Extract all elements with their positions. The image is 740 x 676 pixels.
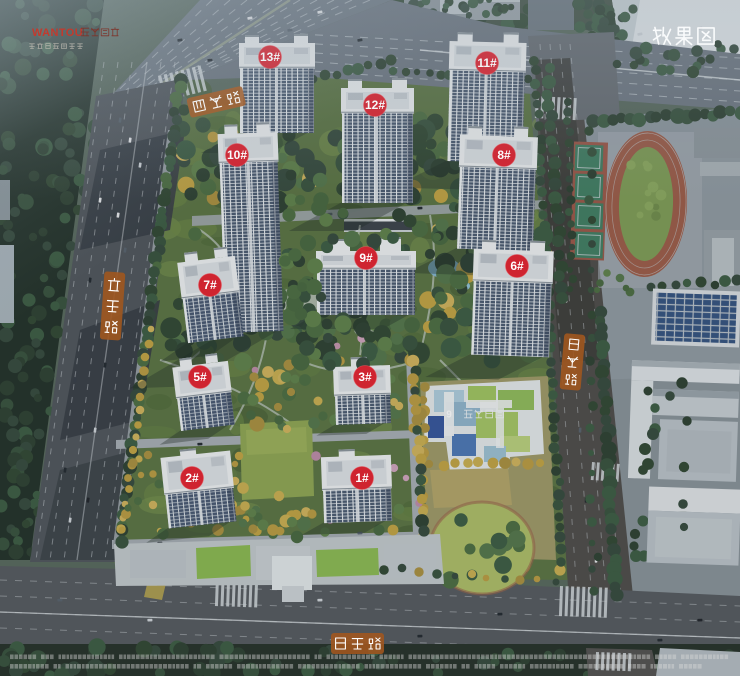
svg-text:WANTOU: WANTOU — [32, 27, 83, 39]
